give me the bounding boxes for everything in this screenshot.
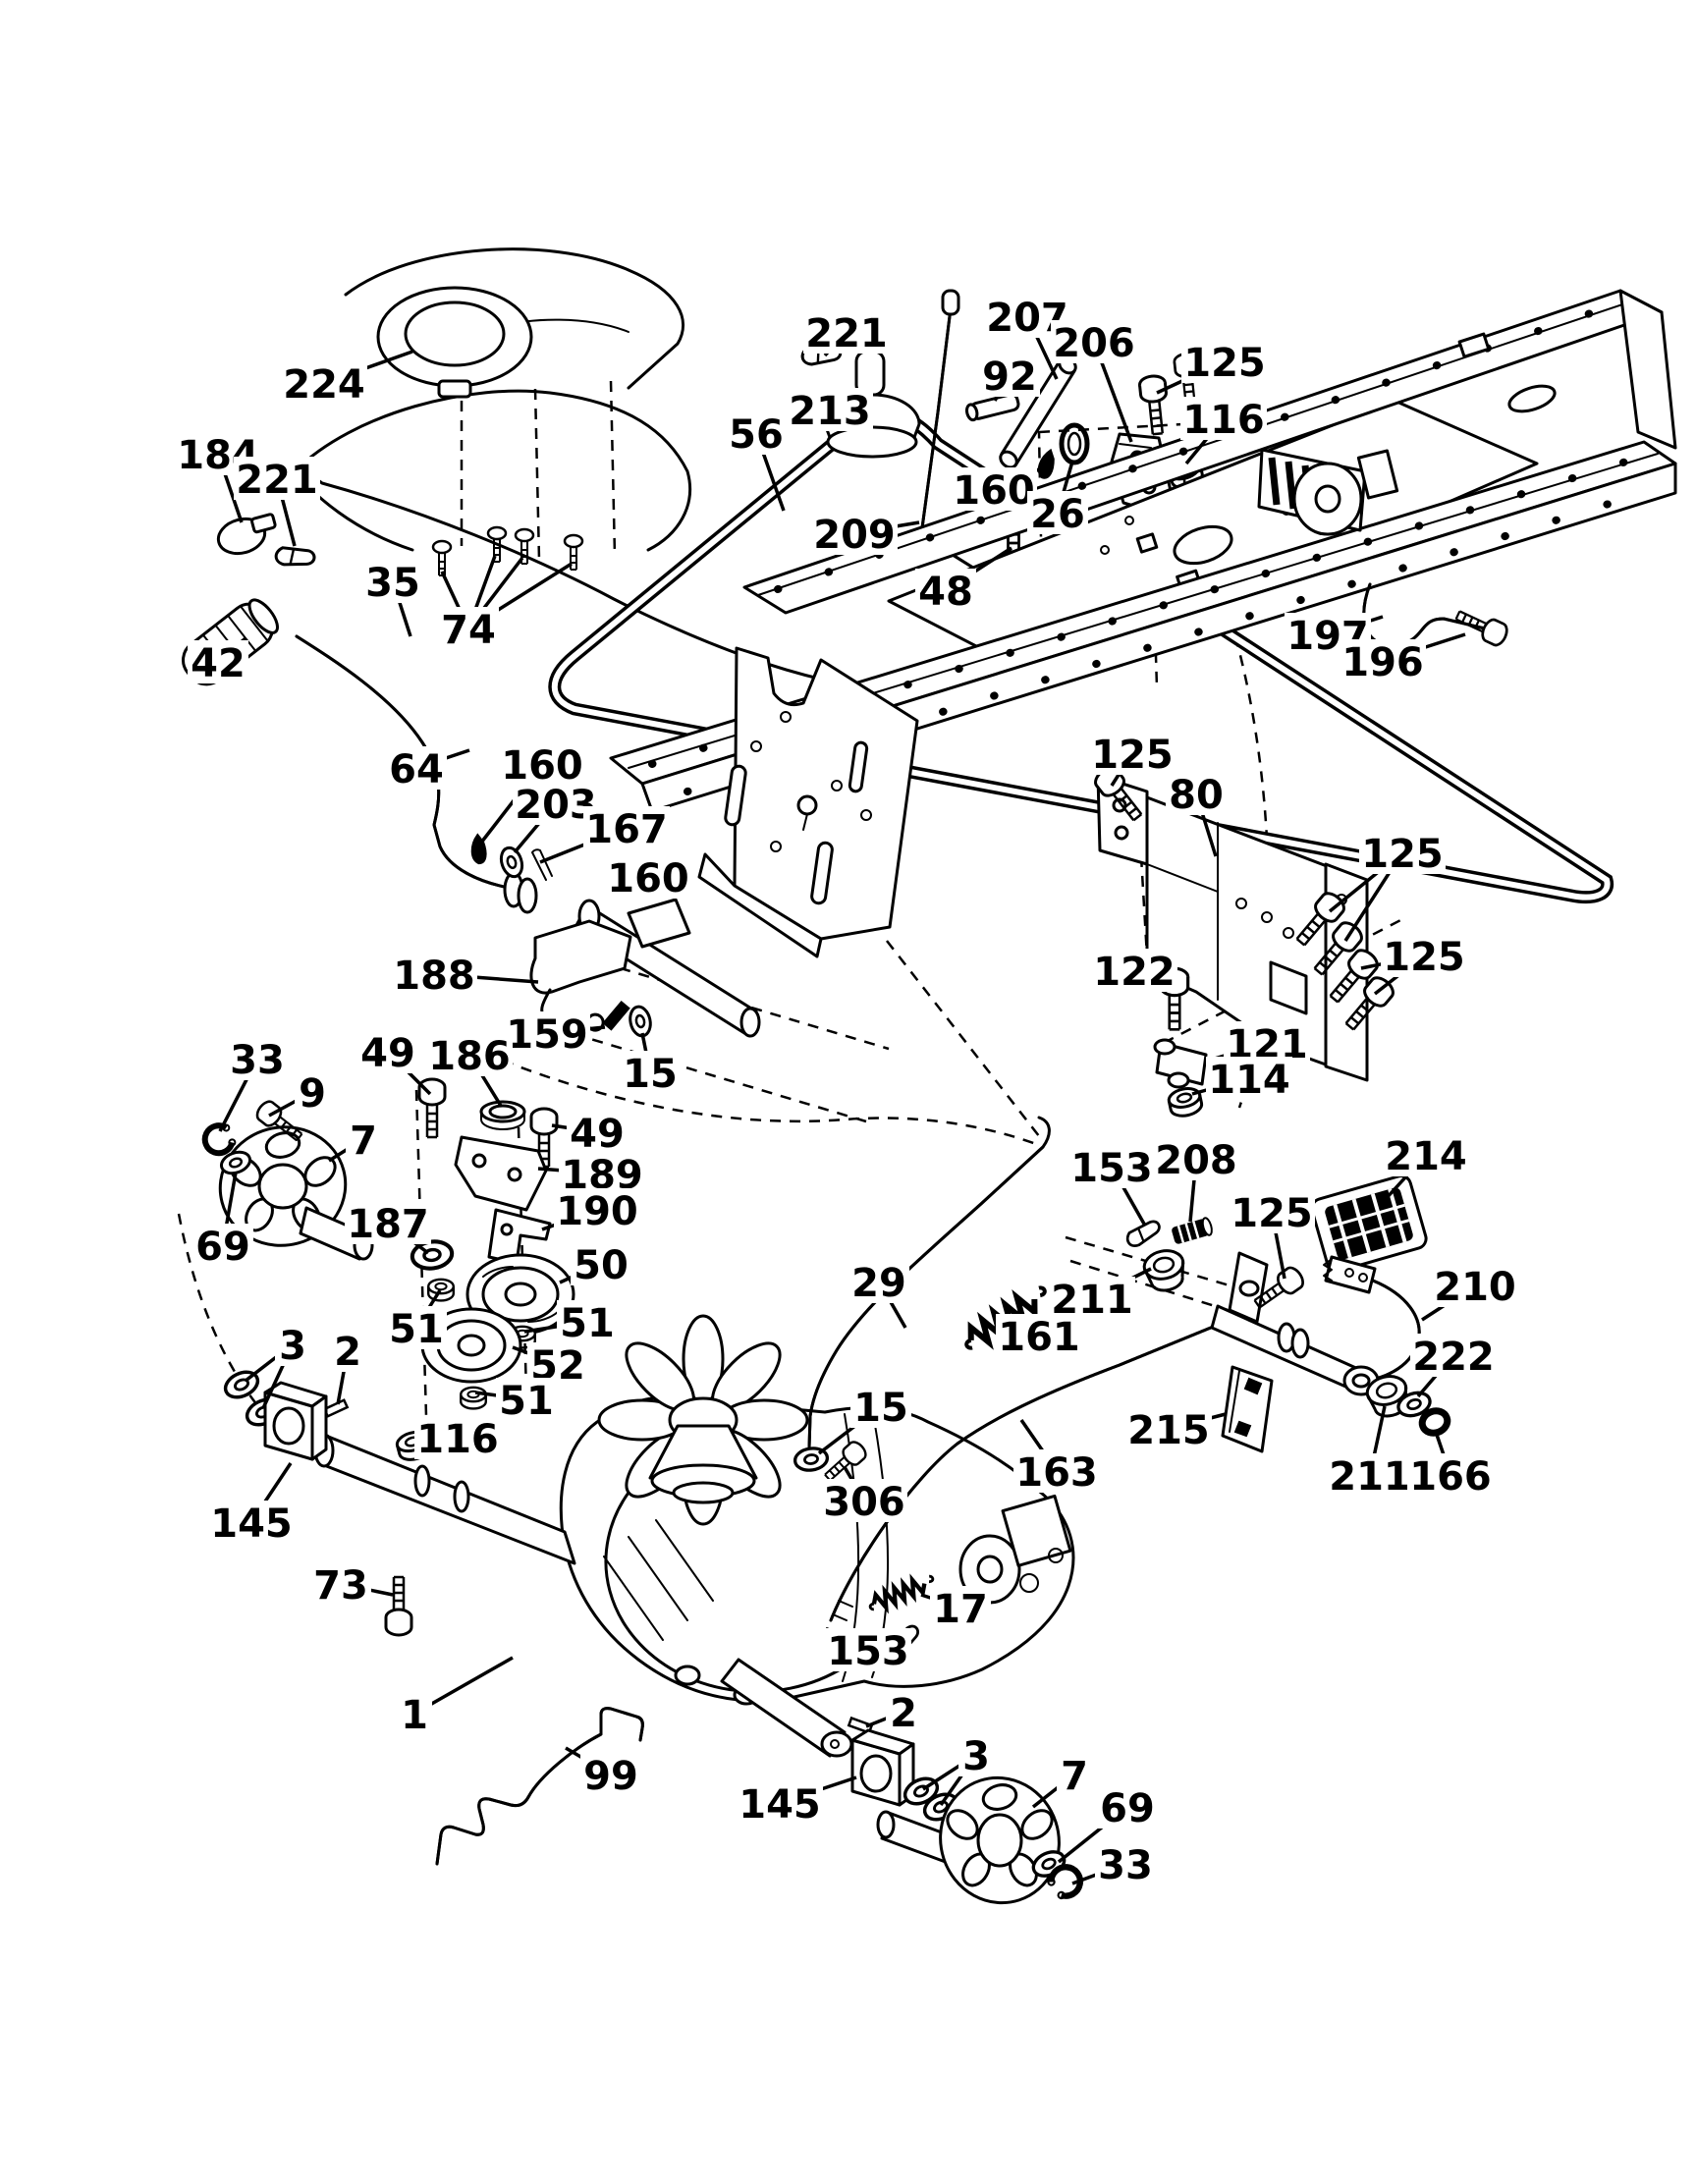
part-number: 211 <box>1329 1454 1411 1500</box>
part-number: 7 <box>350 1119 377 1164</box>
part-number: 221 <box>805 311 888 356</box>
torque-strap-215 <box>1223 1367 1272 1451</box>
part-number: 50 <box>574 1243 629 1288</box>
part-number: 206 <box>1053 321 1135 366</box>
part-number: 125 <box>1361 832 1444 877</box>
callout-215: 215 <box>1125 1407 1226 1453</box>
part-number: 167 <box>585 807 668 852</box>
callout-145: 145 <box>208 1463 295 1547</box>
part-number: 35 <box>365 561 420 606</box>
callout-17: 17 <box>921 1586 991 1632</box>
part-number: 1 <box>401 1693 428 1738</box>
callout-74: 74 <box>438 556 572 653</box>
part-number: 7 <box>1061 1754 1088 1799</box>
exploded-view-drawing: 2241842214235745622121320920720692125116… <box>0 0 1696 2184</box>
part-number: 49 <box>360 1031 415 1076</box>
part-number: 2 <box>334 1330 361 1375</box>
part-number: 114 <box>1208 1058 1290 1103</box>
callout-211: 211 <box>1049 1269 1151 1323</box>
bolt-73 <box>386 1577 411 1635</box>
callout-188: 188 <box>391 953 538 999</box>
part-number: 306 <box>823 1480 905 1525</box>
callout-222: 222 <box>1410 1334 1497 1396</box>
part-number: 187 <box>347 1202 429 1247</box>
part-number: 196 <box>1341 640 1424 685</box>
part-number: 42 <box>191 641 246 686</box>
washer-15-a <box>628 1005 653 1038</box>
brake-rod-29 <box>809 1118 1049 1447</box>
callout-196: 196 <box>1340 634 1465 685</box>
part-number: 15 <box>623 1052 678 1097</box>
part-number: 74 <box>441 608 496 653</box>
callout-49: 49 <box>357 1030 430 1094</box>
callout-187: 187 <box>345 1201 431 1253</box>
callout-1: 1 <box>397 1658 513 1738</box>
callout-7: 7 <box>329 1118 381 1164</box>
part-number: 122 <box>1093 950 1176 995</box>
part-number: 125 <box>1183 341 1266 386</box>
nut-51-a <box>428 1280 454 1301</box>
part-number: 51 <box>499 1379 554 1424</box>
callout-73: 73 <box>310 1562 393 1609</box>
callout-163: 163 <box>1013 1420 1100 1496</box>
parts-diagram-page: 2241842214235745622121320920720692125116… <box>0 0 1696 2184</box>
callout-224: 224 <box>281 352 412 408</box>
part-number: 160 <box>953 468 1035 514</box>
callout-166: 166 <box>1407 1432 1494 1500</box>
washer-203 <box>498 846 525 880</box>
callout-210: 210 <box>1422 1264 1518 1320</box>
callout-99: 99 <box>566 1748 641 1799</box>
part-number: 51 <box>560 1301 615 1346</box>
callout-159: 159 <box>504 1011 605 1058</box>
callout-214: 214 <box>1383 1133 1469 1200</box>
part-number: 163 <box>1015 1450 1098 1496</box>
part-number: 26 <box>1030 492 1085 537</box>
part-number: 48 <box>918 570 973 615</box>
part-number: 3 <box>279 1324 306 1369</box>
part-number: 145 <box>210 1501 293 1547</box>
callout-153: 153 <box>1068 1145 1155 1226</box>
part-number: 209 <box>813 513 896 558</box>
part-number: 51 <box>389 1307 444 1352</box>
part-number: 190 <box>556 1189 638 1234</box>
retaining-ring-33-left <box>202 1122 238 1157</box>
pedal-pad-214 <box>1310 1174 1429 1274</box>
pivot-bracket <box>1230 1253 1267 1322</box>
part-number: 69 <box>1100 1786 1155 1831</box>
callout-49: 49 <box>552 1111 628 1157</box>
part-number: 221 <box>236 458 318 503</box>
part-number: 9 <box>299 1071 326 1117</box>
part-number: 125 <box>1091 733 1174 778</box>
part-number: 208 <box>1155 1138 1237 1183</box>
bearing-block-145-left <box>265 1383 326 1459</box>
part-number: 92 <box>982 355 1037 400</box>
part-number: 73 <box>313 1563 368 1609</box>
callout-29: 29 <box>848 1260 909 1328</box>
part-number: 215 <box>1127 1408 1210 1453</box>
brake-lever-188 <box>531 921 630 1015</box>
part-number: 116 <box>416 1417 499 1462</box>
callout-15: 15 <box>620 1033 681 1097</box>
callout-211: 211 <box>1327 1406 1413 1500</box>
part-number: 186 <box>428 1034 511 1079</box>
part-number: 159 <box>506 1012 588 1058</box>
callout-190: 190 <box>542 1188 640 1234</box>
callout-116: 116 <box>414 1416 501 1462</box>
transaxle-fan <box>599 1316 807 1524</box>
callout-213: 213 <box>787 388 873 434</box>
part-number: 99 <box>583 1754 638 1799</box>
knob-184 <box>214 511 280 558</box>
part-number: 15 <box>853 1386 908 1431</box>
part-number: 224 <box>283 362 365 408</box>
part-number: 160 <box>607 856 689 901</box>
callout-64: 64 <box>386 746 469 792</box>
callout-42: 42 <box>188 638 248 686</box>
callout-125: 125 <box>1089 732 1176 786</box>
part-number: 188 <box>393 954 475 999</box>
part-number: 145 <box>739 1782 821 1828</box>
part-number: 116 <box>1182 398 1265 443</box>
callout-160: 160 <box>951 467 1039 514</box>
part-number: 2 <box>890 1691 917 1736</box>
callout-114: 114 <box>1192 1057 1292 1103</box>
part-number: 125 <box>1231 1191 1313 1236</box>
part-number: 166 <box>1409 1454 1492 1500</box>
part-number: 33 <box>230 1038 285 1083</box>
callout-122: 122 <box>1091 949 1177 995</box>
callout-2: 2 <box>330 1329 365 1404</box>
oring-26 <box>1062 425 1087 463</box>
steering-cap-224 <box>378 288 531 397</box>
idler-bracket-189 <box>456 1137 546 1210</box>
flange-locknut-186 <box>481 1102 524 1129</box>
part-number: 153 <box>1070 1146 1153 1191</box>
part-number: 69 <box>195 1225 250 1270</box>
callout-160: 160 <box>605 855 691 901</box>
callout-221: 221 <box>803 310 890 356</box>
part-number: 211 <box>1051 1278 1133 1323</box>
callout-33: 33 <box>1072 1842 1156 1888</box>
part-number: 213 <box>789 389 871 434</box>
part-number: 33 <box>1098 1843 1153 1888</box>
bolt-159 <box>584 992 630 1040</box>
clevis-121 <box>1155 1040 1206 1087</box>
part-number: 222 <box>1412 1335 1495 1380</box>
callout-56: 56 <box>726 411 787 511</box>
shoulder-screws-74 <box>433 527 582 575</box>
part-number: 214 <box>1385 1134 1467 1179</box>
part-number: 17 <box>933 1587 988 1632</box>
cotter-pin-167 <box>532 849 552 880</box>
callout-208: 208 <box>1153 1137 1239 1222</box>
part-number: 3 <box>962 1734 990 1779</box>
callout-125: 125 <box>1157 340 1268 393</box>
part-number: 80 <box>1169 773 1224 818</box>
callout-145: 145 <box>737 1777 856 1828</box>
part-number: 125 <box>1383 935 1465 980</box>
nut-51-c <box>461 1388 486 1409</box>
part-number: 29 <box>851 1261 906 1306</box>
part-number: 49 <box>570 1112 625 1157</box>
part-number: 153 <box>827 1629 909 1674</box>
spacer-208 <box>1171 1217 1213 1244</box>
callout-35: 35 <box>362 560 423 636</box>
callout-2: 2 <box>866 1690 921 1736</box>
callout-153: 153 <box>825 1628 911 1674</box>
callout-92: 92 <box>979 354 1040 401</box>
part-number: 64 <box>389 747 444 792</box>
square-key-2-left <box>324 1400 347 1417</box>
part-number: 56 <box>729 412 784 458</box>
callout-7: 7 <box>1033 1753 1092 1807</box>
part-number: 210 <box>1434 1265 1516 1310</box>
